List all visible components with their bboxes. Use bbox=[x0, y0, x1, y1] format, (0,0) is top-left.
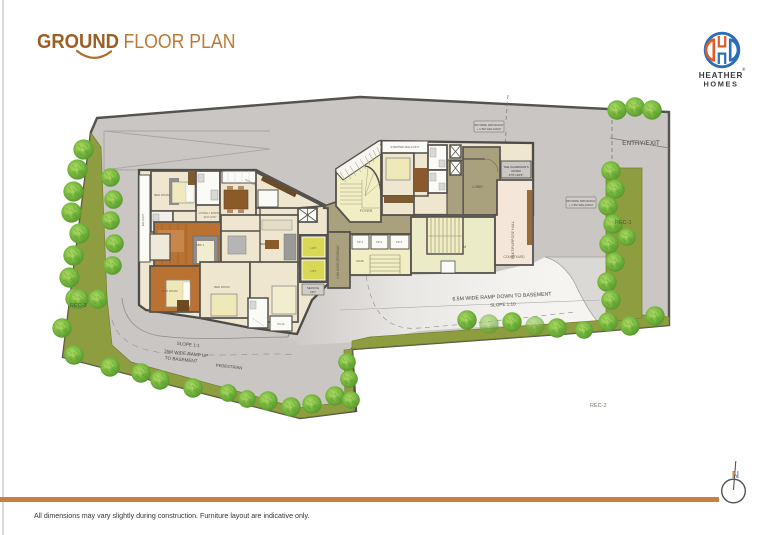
svg-text:LIFT: LIFT bbox=[310, 246, 316, 250]
svg-text:BED ROOM: BED ROOM bbox=[214, 285, 230, 289]
svg-text:REC-2: REC-2 bbox=[590, 403, 607, 409]
svg-text:N: N bbox=[732, 470, 739, 481]
svg-text:BALCONY: BALCONY bbox=[141, 214, 145, 227]
svg-text:CP-1: CP-1 bbox=[357, 240, 364, 244]
svg-text:CP-3: CP-3 bbox=[396, 240, 403, 244]
svg-text:GROUND: GROUND bbox=[37, 30, 119, 53]
svg-text:COURTYARD: COURTYARD bbox=[503, 255, 525, 259]
svg-text:CP-2: CP-2 bbox=[376, 240, 383, 244]
svg-text:LIVING / DINING: LIVING / DINING bbox=[199, 211, 223, 215]
svg-text:MULTIPURPOSE HALL: MULTIPURPOSE HALL bbox=[511, 221, 515, 259]
svg-text:HOMES: HOMES bbox=[703, 80, 738, 89]
svg-text:BED ROOM: BED ROOM bbox=[154, 193, 170, 197]
svg-text:+ 1.5M WALKWAY: + 1.5M WALKWAY bbox=[569, 203, 594, 207]
svg-text:23'4"x13'6": 23'4"x13'6" bbox=[204, 215, 217, 219]
svg-text:LIFT: LIFT bbox=[310, 269, 316, 273]
svg-text:4.5M WIDE DRIVEWAY: 4.5M WIDE DRIVEWAY bbox=[336, 244, 340, 279]
svg-text:REC-1: REC-1 bbox=[615, 220, 632, 226]
svg-text:BED ROOM: BED ROOM bbox=[162, 289, 178, 293]
svg-text:MAID: MAID bbox=[356, 259, 364, 263]
svg-text:FOYER: FOYER bbox=[360, 209, 373, 213]
svg-text:REC-3: REC-3 bbox=[70, 303, 87, 309]
svg-text:BED ROOM: BED ROOM bbox=[260, 242, 276, 246]
svg-text:LIFT: LIFT bbox=[310, 290, 316, 294]
svg-text:All dimensions may vary slight: All dimensions may vary slightly during … bbox=[34, 512, 309, 520]
svg-text:®: ® bbox=[742, 66, 746, 72]
svg-text:STEPPED BALCONY: STEPPED BALCONY bbox=[390, 145, 419, 149]
svg-text:LOBBY: LOBBY bbox=[472, 185, 484, 189]
svg-text:FLOOR PLAN: FLOOR PLAN bbox=[124, 30, 236, 53]
svg-text:+ 1.5M WALKWAY: + 1.5M WALKWAY bbox=[477, 127, 502, 131]
svg-text:DBK 1: DBK 1 bbox=[196, 243, 205, 247]
svg-text:27'0"x16'6": 27'0"x16'6" bbox=[509, 173, 524, 177]
svg-text:PUJA: PUJA bbox=[277, 322, 284, 326]
